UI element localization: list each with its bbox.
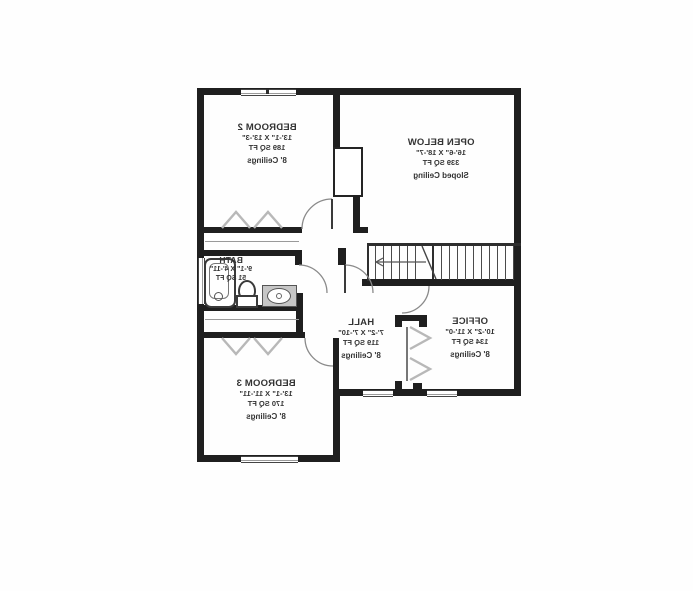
room-label-openbelow: OPEN BELOW 16'-6" X 18'-7" 339 SQ FT Slo… — [408, 138, 475, 181]
room-name: BEDROOM 2 — [237, 123, 296, 133]
room-area: 51 SQ FT — [210, 274, 252, 283]
door-arc-bedroom2 — [302, 199, 332, 229]
door-arc-hall — [345, 265, 373, 293]
room-label-bedroom3: BEDROOM 3 13'-1" X 11'-11" 170 SQ FT 8' … — [236, 379, 295, 422]
room-dimensions: 7'-2" X 7'-10" — [338, 328, 384, 338]
room-name: BEDROOM 3 — [236, 379, 295, 389]
door-arc-office — [402, 286, 429, 313]
room-area: 170 SQ FT — [236, 399, 295, 409]
door-arc-bath — [299, 265, 327, 293]
room-label-bedroom2: BEDROOM 2 13'-1" X 13'-3" 189 SQ FT 8' C… — [237, 123, 296, 166]
room-ceiling: 8' Ceilings — [445, 350, 494, 360]
room-ceiling: Sloped Ceiling — [408, 171, 475, 181]
closet-chevron-icon — [254, 338, 282, 354]
room-name: BATH — [210, 256, 252, 265]
room-name: HALL — [338, 318, 384, 328]
room-dimensions: 16'-6" X 18'-7" — [408, 148, 475, 158]
room-dimensions: 13'-1" X 11'-11" — [236, 389, 295, 399]
room-ceiling: 8' Ceilings — [237, 156, 296, 166]
room-name: OFFICE — [445, 317, 494, 327]
room-dimensions: 10'-2" X 11'-0" — [445, 327, 494, 337]
closet-chevron-icon — [222, 212, 250, 228]
closet-chevron-icon — [254, 212, 282, 228]
room-label-bath: BATH 9'-1" X 4'-11" 51 SQ FT — [210, 256, 252, 283]
closet-chevron-icon — [410, 358, 430, 380]
closet-chevron-icon — [410, 327, 430, 349]
plan-symbols-layer — [0, 0, 693, 591]
floorplan-canvas: BEDROOM 2 13'-1" X 13'-3" 189 SQ FT 8' C… — [0, 0, 693, 591]
room-area: 119 SQ FT — [338, 338, 384, 348]
door-arc-bedroom3 — [305, 338, 333, 366]
room-ceiling: 8' Ceilings — [236, 412, 295, 422]
closet-chevron-icon — [222, 338, 250, 354]
room-area: 134 SQ FT — [445, 337, 494, 347]
room-area: 189 SQ FT — [237, 143, 296, 153]
room-dimensions: 13'-1" X 13'-3" — [237, 133, 296, 143]
room-name: OPEN BELOW — [408, 138, 475, 148]
room-label-office: OFFICE 10'-2" X 11'-0" 134 SQ FT 8' Ceil… — [445, 317, 494, 360]
room-area: 339 SQ FT — [408, 158, 475, 168]
room-dimensions: 9'-1" X 4'-11" — [210, 265, 252, 274]
room-ceiling: 8' Ceilings — [338, 351, 384, 361]
room-label-hall: HALL 7'-2" X 7'-10" 119 SQ FT 8' Ceiling… — [338, 318, 384, 361]
